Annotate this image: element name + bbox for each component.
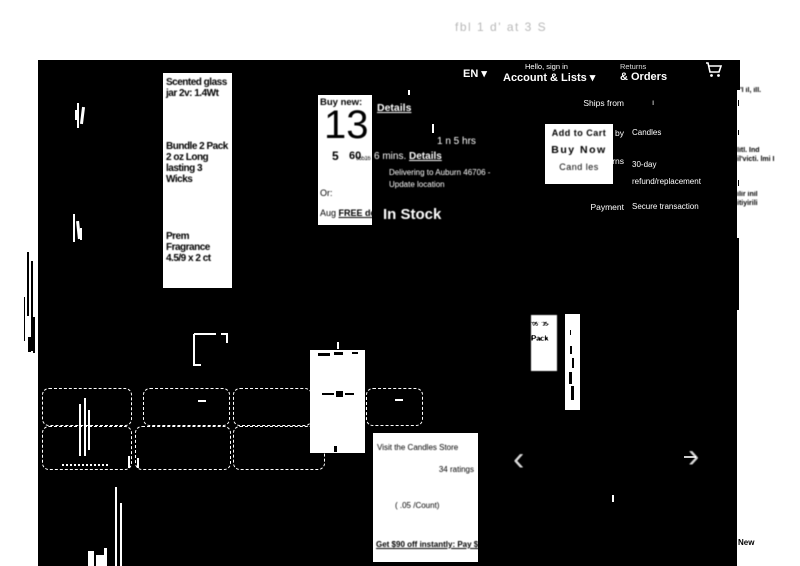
swatch-image-artifact [88,410,90,450]
artifact-mark [80,228,82,240]
artifact-mark [408,90,410,95]
orders-menu[interactable]: & Orders [620,71,667,83]
unit-price: ( .05 /Count) [395,501,439,510]
margin-artifact [24,297,25,341]
artifact-mark [73,214,75,242]
thumb-artifact [570,346,572,354]
sold-by-value[interactable]: Candles [632,128,661,137]
image-detail-artifact [318,353,330,356]
variation-tile[interactable] [143,388,230,426]
delivery-mins-line: 6 mins. Details [374,151,442,162]
free-delivery-link: FREE del [339,208,372,218]
variation-tile[interactable] [233,388,312,426]
edge-artifact [738,100,739,106]
language-selector[interactable]: EN ▾ [463,67,487,80]
artifact-mark [120,503,122,566]
artifact-mark [612,495,614,502]
margin-text-fragment: litl. Ind il'victi. lmi I [737,146,781,164]
purchase-buttons-panel: Add to Cart Buy Now Cand les [545,124,613,184]
buybox-price-card: Buy new: 13 5 60 55516 Or: Aug FREE del [318,95,372,225]
frame-artifact [226,334,228,343]
thumb-artifact [570,330,571,335]
pack-price-line2: Pack [531,332,557,345]
product-title-card: Scented glass jar 2v: 1.4Wt Bundle 2 Pac… [163,73,232,288]
artifact-mark [62,464,108,466]
variation-tile[interactable] [42,388,132,426]
or-label: Or: [320,188,333,198]
ships-from-label: Ships from [540,98,624,108]
titlebar-text: fbl 1 d' at 3 S [455,20,547,34]
swatch-image-artifact [84,398,86,456]
artifact-mark [104,548,107,566]
seller-info-card: Visit the Candles Store 34 ratings ( .05… [373,433,478,562]
image-detail-artifact [336,391,343,397]
margin-artifact [33,317,35,353]
artifact-mark [137,458,139,468]
frame-artifact [194,333,216,335]
pack-price-line1: '05' '35- [531,319,557,332]
product-title-line: Scented glass jar 2v: 1.4Wt [166,77,230,99]
returns-label[interactable]: Returns [620,62,646,71]
image-detail-artifact [352,352,358,354]
artifact-mark [75,110,77,120]
price-frac-tiny: 55516 [356,156,370,162]
artifact-mark [337,342,339,349]
ships-from-value: ı [652,98,654,107]
ratings-link[interactable]: 34 ratings [373,465,474,474]
variation-tile[interactable] [366,388,423,426]
swatch-dash-artifact [395,399,403,401]
thumb-artifact [569,372,572,384]
frame-artifact [193,364,201,366]
product-size-line: Prem Fragrance 4.5/9 x 2 ct [166,231,230,264]
returns-policy-value: 30-day refund/replacement [632,156,684,190]
artifact-mark [128,456,130,468]
artifact-mark [88,551,94,566]
pack-price-tile[interactable]: '05' '35- Pack [531,315,557,371]
update-location-link[interactable]: Update location [389,179,499,191]
artifact-mark [77,103,79,128]
margin-artifact [27,252,29,316]
artifact-mark [684,456,696,458]
edge-artifact [738,130,739,135]
details-link-mins[interactable]: Details [409,151,442,162]
frame-artifact [193,334,195,366]
image-detail-artifact [322,393,334,395]
product-image[interactable] [310,350,365,453]
price-frac-a: 5 [332,149,339,163]
delivery-countdown-fragment: 1 n 5 hrs [437,136,476,147]
buy-now-button[interactable]: Buy Now [545,144,613,156]
add-to-cart-button[interactable]: Add to Cart [545,128,613,138]
carousel-prev-icon[interactable]: ‹ [513,444,524,474]
promo-link[interactable]: Get $90 off instantly: Pay $0.00 [376,540,478,549]
details-link-top[interactable]: Details [377,102,411,114]
mins-text: 6 mins. [374,151,409,162]
signin-greeting[interactable]: Hello, sign in [525,62,568,71]
swatch-dash-artifact [198,400,206,402]
margin-artifact [28,337,31,352]
image-detail-artifact [345,393,354,395]
margin-text-fragment: 'l il, ill. [740,86,780,95]
delivering-to-line1: Delivering to Auburn 46706 - [389,167,499,179]
artifact-mark [115,487,117,566]
thumb-artifact [571,386,574,400]
edge-artifact [738,180,739,186]
artifact-mark [432,124,434,133]
image-detail-artifact [334,446,337,452]
free-delivery-line[interactable]: Aug FREE del [320,208,372,218]
variation-tile[interactable] [135,426,231,470]
product-subtitle-line: Bundle 2 Pack 2 oz Long lasting 3 Wicks [166,141,230,185]
price-whole: 13 [324,103,369,148]
edge-artifact [737,238,739,310]
free-delivery-prefix: Aug [320,208,339,218]
titlebar-dots: - ·· - [520,8,547,17]
in-stock-status: In Stock [383,206,441,223]
payment-label: Payment [540,202,624,212]
image-detail-artifact [334,352,343,355]
account-lists-menu[interactable]: Account & Lists ▾ [503,71,595,84]
delivering-to-block[interactable]: Delivering to Auburn 46706 - Update loca… [389,167,499,191]
condition-badge: New [738,538,754,547]
thumb-artifact [572,358,574,368]
screen: - ·· - fbl 1 d' at 3 S EN ▾ Hello, sign … [0,0,800,566]
thumbnail-strip[interactable] [565,314,580,410]
payment-value: Secure transaction [632,202,699,211]
swatch-image-artifact [79,404,81,456]
store-link[interactable]: Visit the Candles Store [377,443,458,452]
margin-text-fragment: ilir inil itiyirili [737,190,779,208]
seller-link[interactable]: Cand les [545,162,613,172]
cart-icon[interactable] [705,62,723,83]
